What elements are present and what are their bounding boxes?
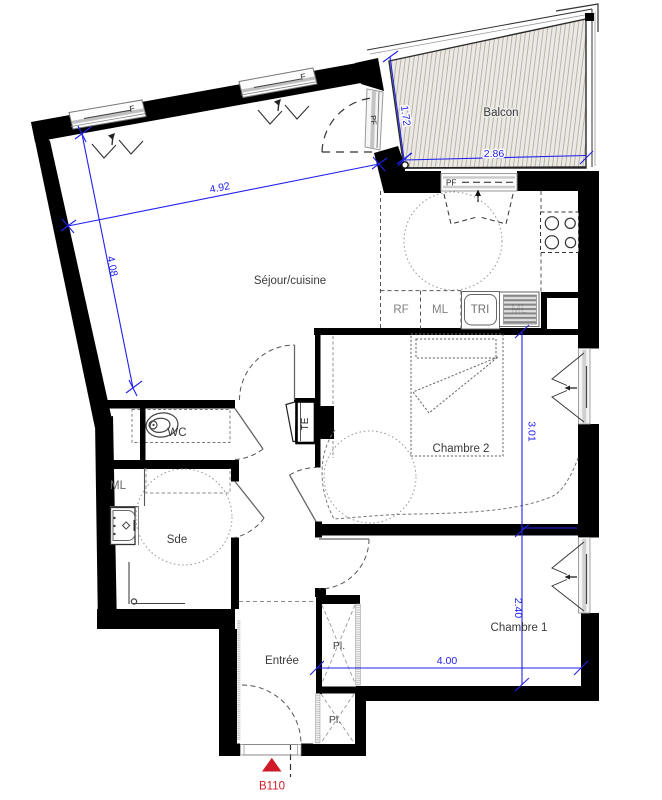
svg-text:PF: PF [446,179,456,188]
svg-text:2.86: 2.86 [484,148,505,160]
svg-text:Chambre 2: Chambre 2 [433,443,490,455]
svg-text:B110: B110 [259,781,285,793]
svg-text:RF: RF [393,304,408,316]
svg-text:Pl.: Pl. [333,640,345,652]
svg-text:4.00: 4.00 [437,655,458,667]
svg-text:TRI: TRI [471,304,490,316]
svg-text:Chambre 1: Chambre 1 [491,622,548,634]
svg-text:TE: TE [300,417,311,430]
svg-text:Balcon: Balcon [483,107,518,119]
svg-text:Séjour/cuisine: Séjour/cuisine [254,275,326,287]
svg-text:Pl.: Pl. [329,714,341,726]
svg-text:WC: WC [167,427,186,439]
svg-text:Sde: Sde [167,534,187,546]
svg-text:ML: ML [110,480,127,492]
svg-text:PF: PF [369,115,379,126]
svg-text:2.40: 2.40 [512,598,524,619]
svg-text:Entrée: Entrée [265,655,299,667]
svg-text:3.01: 3.01 [526,421,538,442]
svg-text:ML: ML [432,304,449,316]
